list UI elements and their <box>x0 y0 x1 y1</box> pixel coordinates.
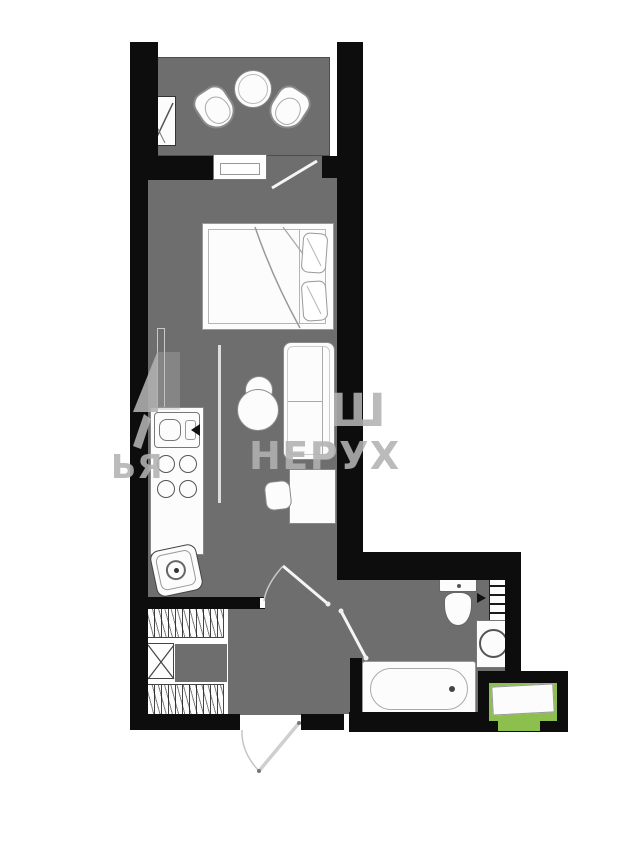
bathtub <box>362 661 476 717</box>
wall-bottom-mid <box>301 714 349 730</box>
balcony-table <box>234 70 272 108</box>
wardrobe-rail-bottom <box>146 684 224 715</box>
kitchen-counter <box>150 407 204 555</box>
faucet-icon <box>191 424 200 436</box>
balcony-table-rim <box>238 74 268 104</box>
wall-balcony-door-stub <box>322 156 337 178</box>
valve-icon <box>477 593 486 603</box>
toilet-tank <box>439 578 477 592</box>
tall-cabinet-outline <box>157 328 165 408</box>
room-divider-line <box>218 345 221 503</box>
stove <box>154 452 200 506</box>
window-sill <box>220 163 260 175</box>
sofa-backrest-line <box>322 347 323 455</box>
entry-door-arc <box>242 730 259 771</box>
wall-bottom-left <box>130 714 240 730</box>
hallway-floor <box>227 597 363 715</box>
sofa <box>283 342 335 460</box>
wall-top-left <box>130 42 158 158</box>
burner <box>157 455 175 473</box>
pillow <box>301 232 329 274</box>
burner <box>179 455 197 473</box>
duct-shaft <box>146 643 174 679</box>
sofa-cushion-line <box>288 401 322 402</box>
wall-room-hall-divider <box>143 597 265 609</box>
sink-bowl <box>159 419 181 441</box>
wardrobe-rail-top <box>146 607 224 638</box>
wall-under-balcony <box>148 156 213 180</box>
pillow-divider <box>299 229 300 324</box>
window <box>213 154 267 180</box>
wall-bathroom-right <box>505 552 521 690</box>
bathtub-drain <box>449 686 455 692</box>
armchair-seat <box>237 389 279 431</box>
wall-bathroom-top <box>337 552 521 580</box>
burner <box>179 480 197 498</box>
wall-right-column <box>337 42 363 558</box>
wall-left <box>130 156 148 730</box>
loggia-furniture <box>491 683 554 715</box>
wardrobe-floor-inset <box>175 644 227 682</box>
jamb-entry-left <box>241 716 246 729</box>
desk <box>289 469 336 524</box>
washing-machine <box>149 543 205 599</box>
jamb-entry-right <box>296 716 301 729</box>
shaft-x-icon <box>147 644 175 680</box>
burner <box>157 480 175 498</box>
double-bed <box>202 223 334 330</box>
jamb-bathroom-bottom <box>344 714 349 730</box>
washbasin-bowl <box>479 629 508 658</box>
chair-seat <box>200 92 235 129</box>
jamb-room-door <box>260 598 265 608</box>
entry-door-leaf <box>259 723 299 771</box>
pillow <box>301 280 329 322</box>
loggia-door-green <box>498 716 540 731</box>
toilet-button <box>457 584 461 588</box>
kitchen-sink <box>154 412 200 448</box>
floor-plan: ЬЯ Ш НЕРУХ <box>0 0 635 849</box>
desk-chair <box>264 480 293 512</box>
